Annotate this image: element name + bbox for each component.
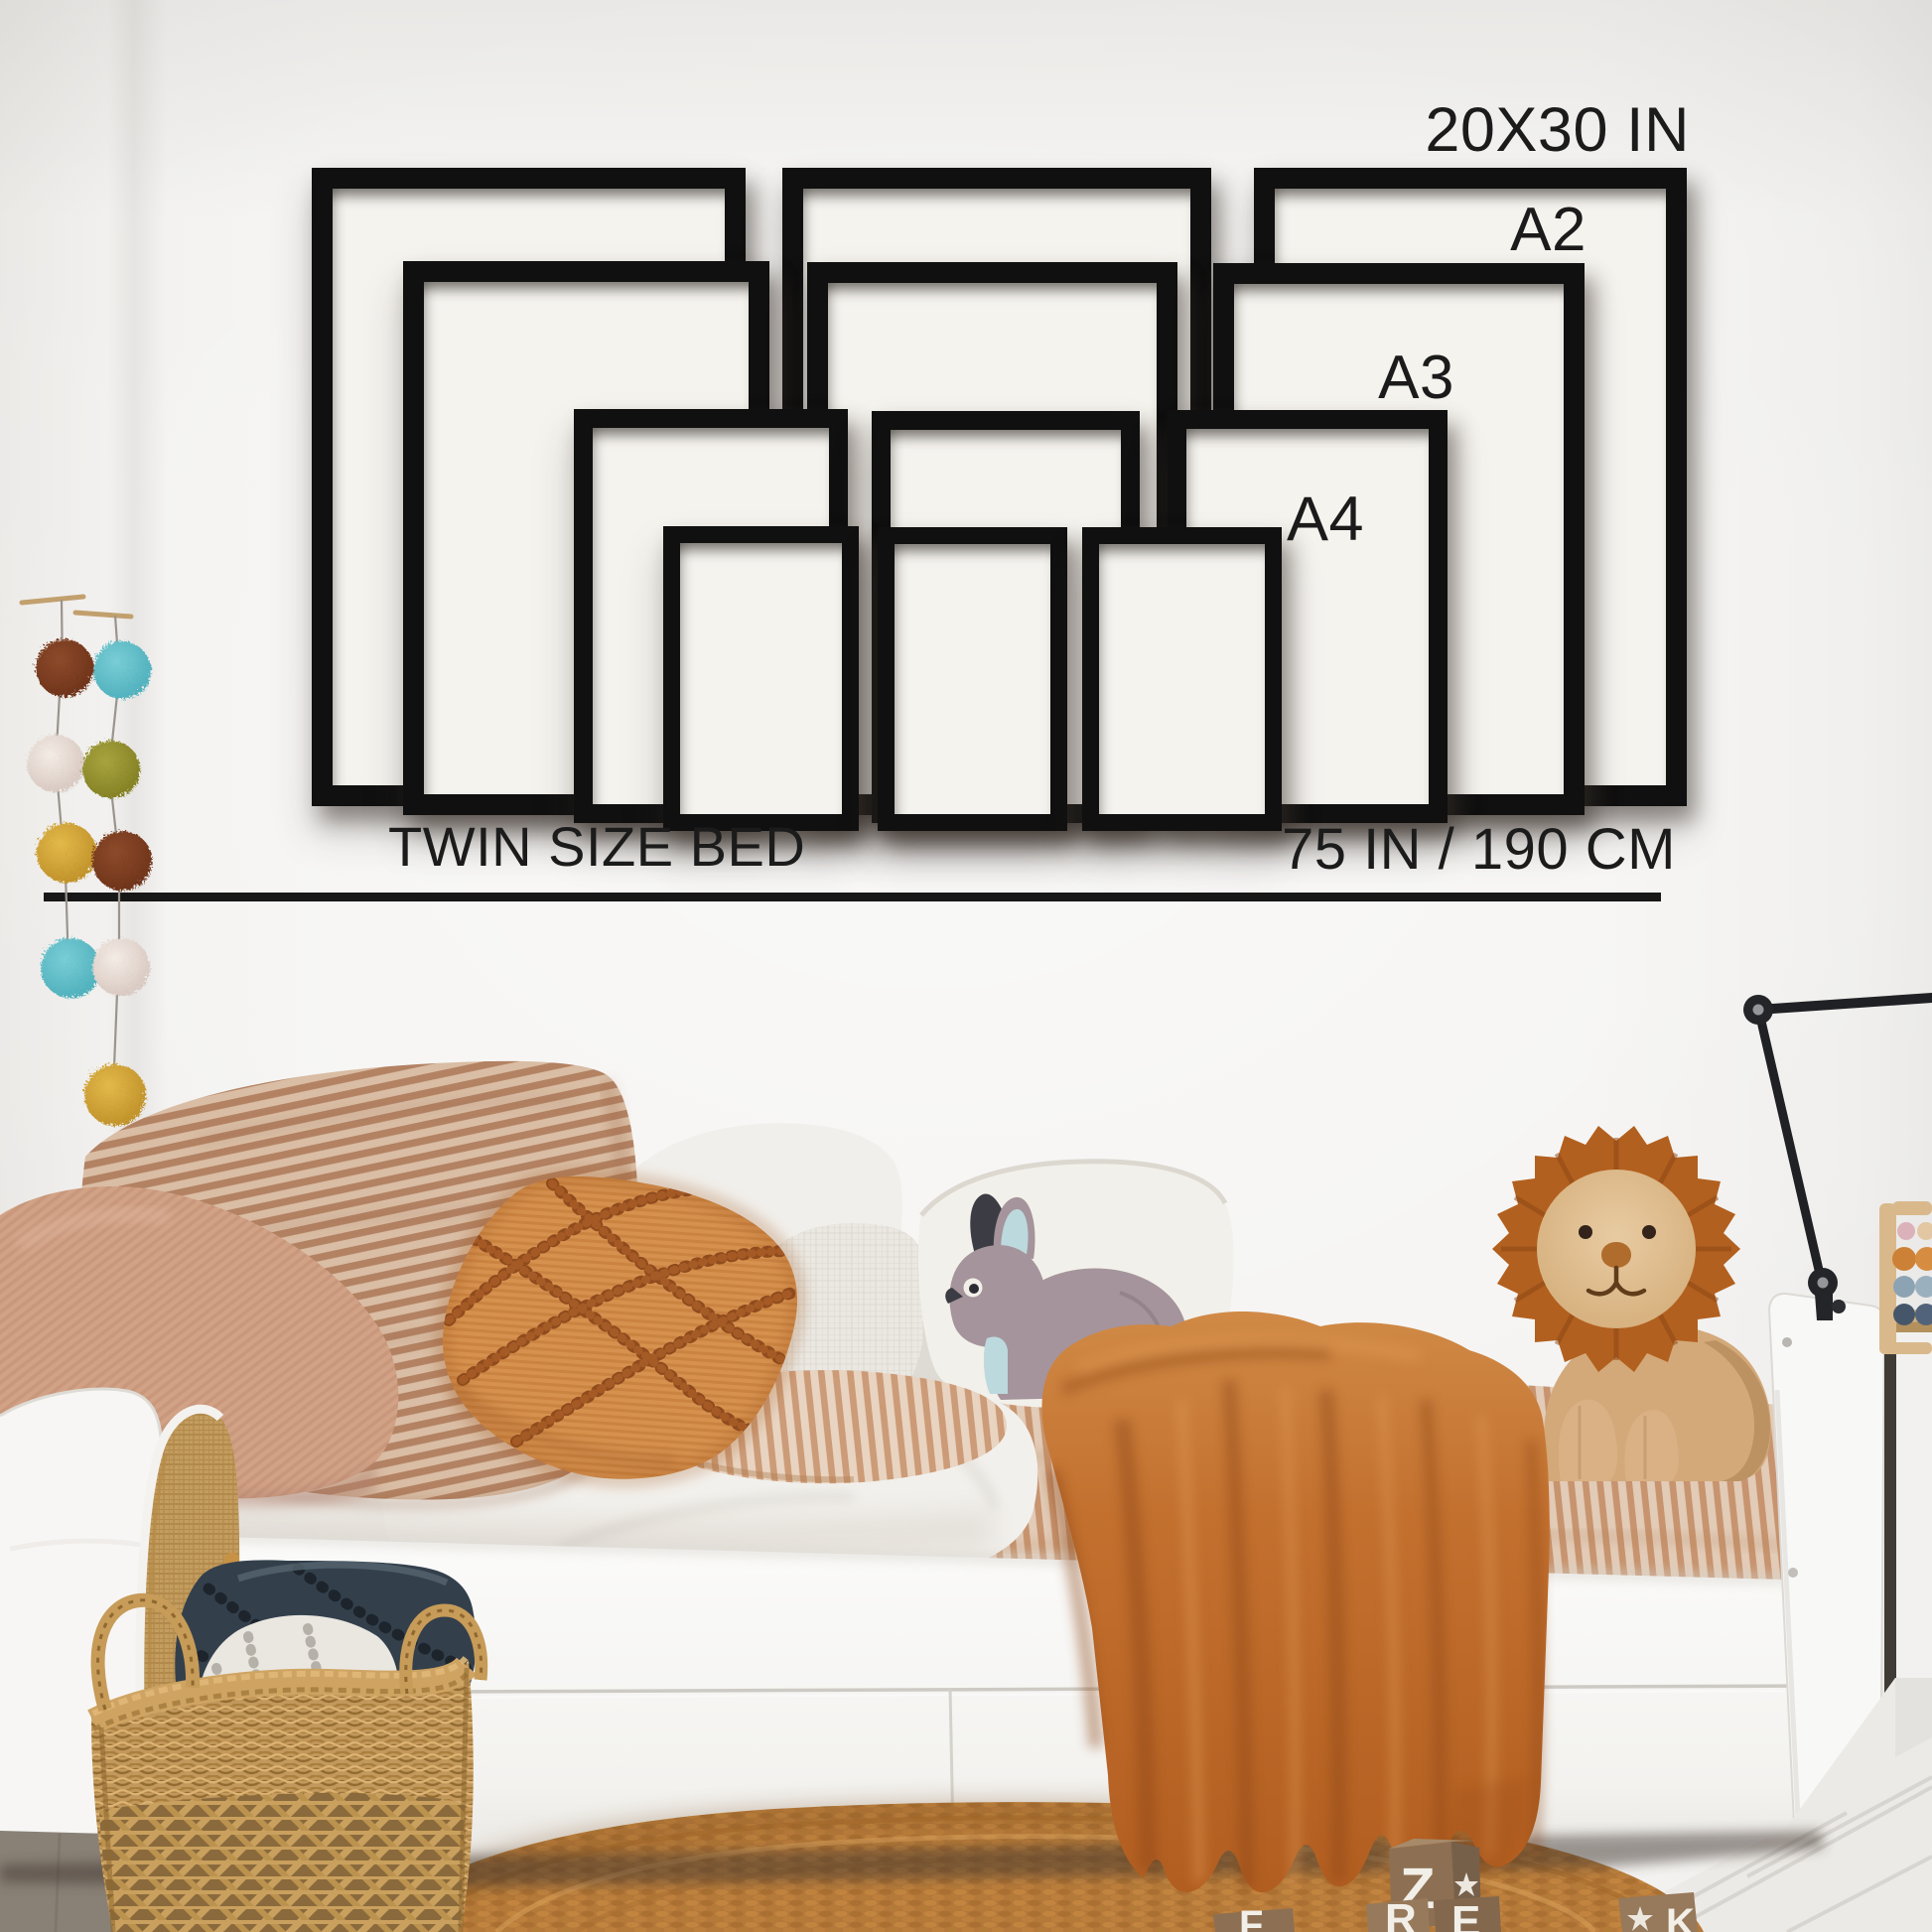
svg-text:K: K: [1666, 1901, 1695, 1932]
svg-text:F: F: [1239, 1903, 1263, 1932]
svg-text:R: R: [1385, 1895, 1417, 1932]
svg-text:E: E: [1451, 1897, 1480, 1932]
